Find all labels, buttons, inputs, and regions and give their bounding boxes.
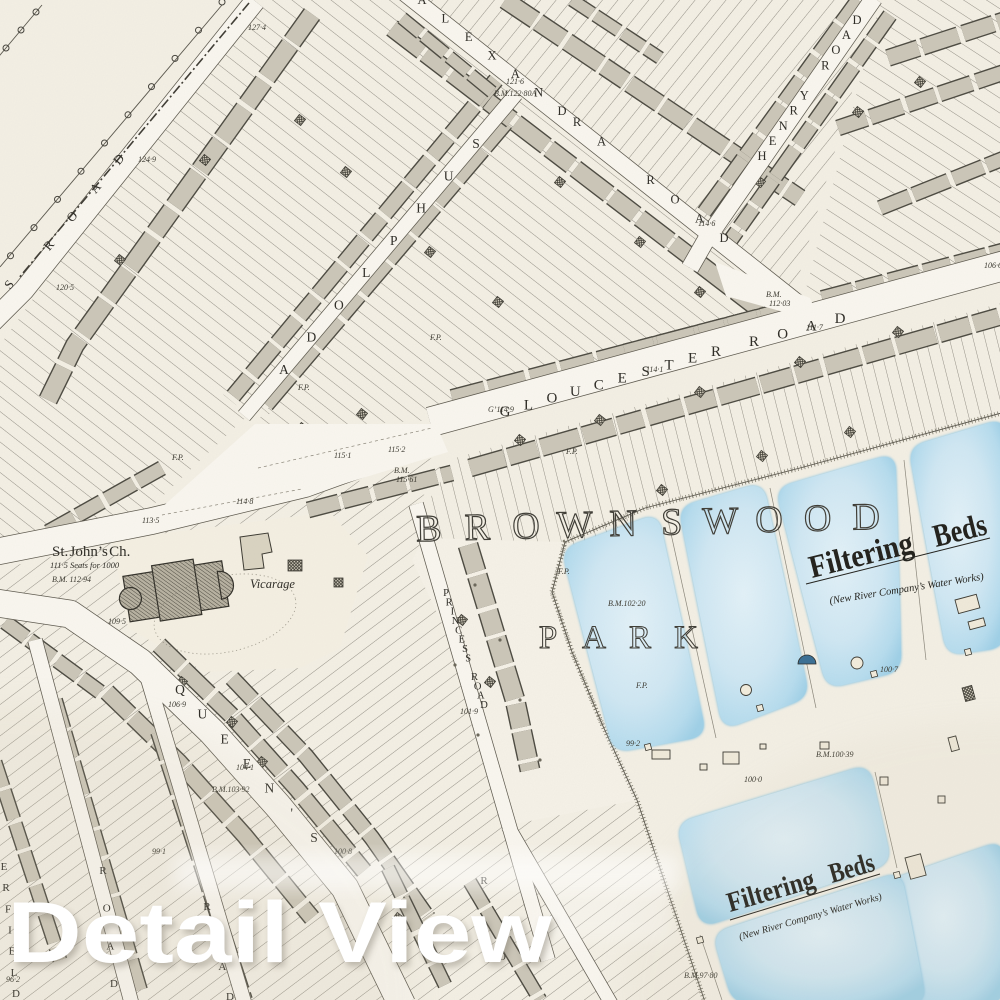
svg-text:Detail View: Detail View [7,885,553,981]
